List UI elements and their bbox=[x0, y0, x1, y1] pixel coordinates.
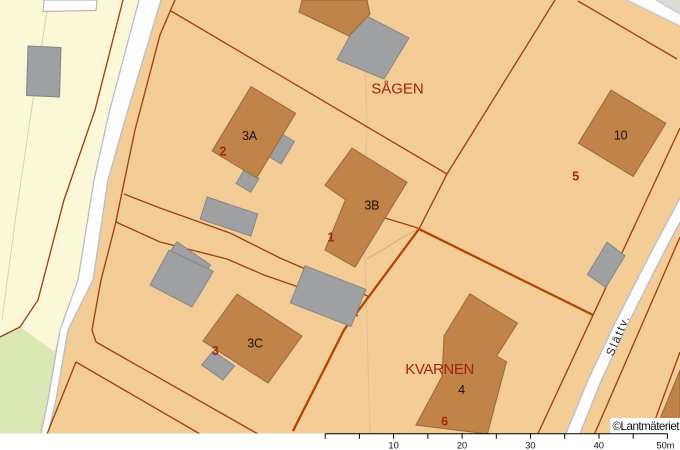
svg-text:3B: 3B bbox=[364, 199, 379, 213]
svg-text:10: 10 bbox=[614, 128, 628, 142]
svg-text:5: 5 bbox=[572, 170, 579, 184]
svg-text:3: 3 bbox=[212, 344, 219, 358]
svg-text:SÅGEN: SÅGEN bbox=[371, 81, 424, 98]
svg-text:4: 4 bbox=[458, 383, 465, 397]
svg-text:3C: 3C bbox=[247, 337, 263, 351]
svg-text:1: 1 bbox=[328, 231, 335, 245]
svg-text:50m: 50m bbox=[656, 441, 674, 450]
svg-text:3A: 3A bbox=[242, 129, 258, 143]
svg-text:2: 2 bbox=[220, 144, 227, 158]
svg-text:©Lantmäteriet: ©Lantmäteriet bbox=[613, 420, 680, 433]
svg-text:KVARNEN: KVARNEN bbox=[405, 361, 474, 378]
svg-text:10: 10 bbox=[388, 441, 398, 450]
svg-text:20: 20 bbox=[457, 441, 467, 450]
svg-text:40: 40 bbox=[594, 441, 604, 450]
svg-text:6: 6 bbox=[441, 414, 448, 428]
svg-text:30: 30 bbox=[525, 441, 535, 450]
